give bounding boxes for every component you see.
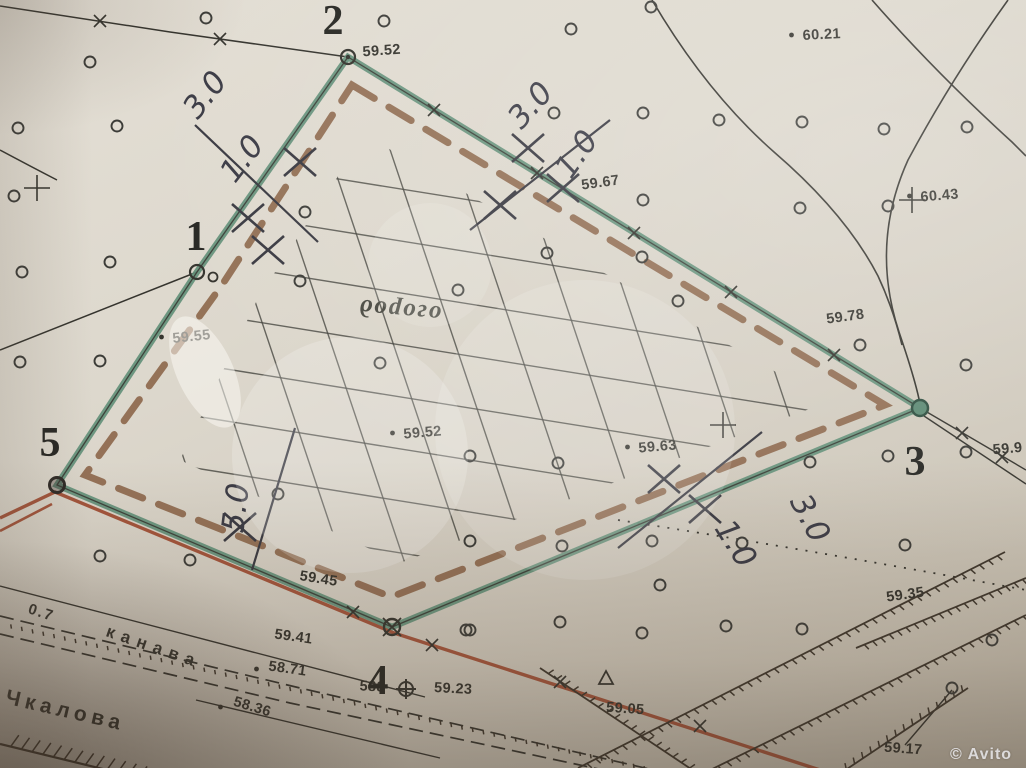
embankment-tooth [408,713,409,717]
embankment-tooth [32,740,40,751]
embankment-tooth [971,569,976,573]
embankment-tooth [656,742,661,746]
elevation-dot [789,33,794,38]
elevation-label: 59.05 [606,700,645,719]
embankment-tooth [623,745,628,749]
embankment-tooth [745,753,750,757]
embankment-tooth [960,647,965,651]
embankment-tooth [853,700,858,704]
embankment-tooth [631,725,636,729]
embankment-tooth [953,578,958,582]
embankment-tooth [920,713,921,719]
embankment-tooth [924,665,929,669]
embankment-tooth [587,763,592,767]
embankment-tooth [43,743,51,754]
elevation-label: 59.52 [362,42,401,61]
embankment-tooth [64,636,65,640]
embankment-tooth [673,753,678,757]
embankment-tooth [11,735,19,746]
site-plan-map: 59.5260.2160.4359.6759.5559.7859.5259.63… [0,0,1026,768]
point-symbol [805,457,816,468]
embankment-tooth [969,643,974,647]
embankment-tooth [601,757,602,761]
fence-line [0,6,348,57]
embankment-tooth [86,641,87,645]
point-symbol [962,122,973,133]
embankment-tooth [880,687,885,691]
embankment-tooth [997,556,1002,560]
embankment-tooth [225,672,226,676]
embankment-tooth [580,752,581,756]
embankment-tooth [537,742,538,746]
embankment-tooth [895,730,896,736]
embankment-tooth [783,664,788,668]
point-symbol [201,13,212,24]
contour-line [652,0,902,345]
corner-number: 2 [323,0,344,44]
point-symbol [987,635,998,646]
elevation-dot [254,667,259,672]
embankment-tooth [889,634,894,639]
embankment-tooth [774,669,779,673]
point-symbol [300,207,311,218]
corner-point-3 [912,400,928,416]
embankment-tooth [658,727,663,731]
embankment-tooth [763,744,768,748]
embankment-tooth [596,759,601,763]
embankment-tooth [301,689,302,693]
embankment-tooth [756,678,761,682]
embankment-tooth [871,691,876,695]
point-symbol [879,124,890,135]
embankment-tooth [598,703,603,707]
street-label: Чкалова [3,686,127,736]
embankment-tooth [903,724,904,730]
embankment-tooth [354,701,355,705]
embankment-tooth [939,614,944,619]
embankment-tooth [819,646,824,650]
embankment-tooth [988,560,993,564]
point-symbol [555,617,566,628]
embankment-tooth [690,764,695,768]
embankment-tooth [846,633,851,637]
embankment-tooth [558,747,559,751]
embankment-tooth [989,593,994,598]
point-symbol [15,357,26,368]
hatch-line [866,90,1026,620]
embankment-tooth [547,745,548,749]
elevation-label: 59.35 [885,584,925,605]
embankment-tooth [376,706,377,710]
embankment-tooth [632,741,637,745]
point-symbol [637,628,648,639]
embankment-tooth [906,674,911,678]
point-symbol [379,16,390,27]
embankment-tooth [32,629,33,633]
embankment-tooth [75,639,76,643]
embankment-tooth [685,714,690,718]
embankment-tooth [107,646,108,650]
point-symbol [112,121,123,132]
embankment-tooth [11,624,12,628]
embankment-tooth [973,600,978,605]
point-symbol [646,2,657,13]
embankment-tooth [128,764,136,768]
handwritten-measurement: 3.0 [501,75,561,136]
watermark-circle [435,280,735,580]
embankment-tooth [1014,621,1019,625]
embankment-tooth [694,709,699,713]
embankment-lines [0,552,1026,768]
point-symbol [105,257,116,268]
elevation-label: 60.43 [920,186,960,205]
embankment-tooth [1006,586,1011,591]
embankment-tooth [837,637,842,641]
embankment-tooth [956,607,961,612]
embankment-tooth [835,709,840,713]
embankment-tooth [739,687,744,691]
point-symbol [961,360,972,371]
embankment-tooth [21,738,29,749]
embankment-tooth [736,757,741,761]
embankment-tooth [862,752,863,758]
point-symbol [721,621,732,632]
elevation-dot [159,335,164,340]
embankment-line [0,744,255,768]
point-symbol [566,24,577,35]
embankment-tooth [810,651,815,655]
elevation-label: 59.41 [273,626,313,647]
embankment-tooth [75,751,83,762]
point-symbol [961,447,972,458]
embankment-tooth [935,587,940,591]
watermark-circle [232,337,468,573]
embankment-tooth [997,590,1002,595]
embankment-tooth [748,682,753,686]
embankment-tooth [915,669,920,673]
embankment-tooth [727,762,732,766]
embankment-tooth [721,696,726,700]
embankment-tooth [878,741,879,747]
contour-line [872,0,1026,156]
point-symbol [714,115,725,126]
embankment-tooth [365,704,366,708]
handwritten-measurement: 3.0 [176,64,235,125]
elevation-label: 59.9 [992,440,1023,459]
embankment-tooth [43,632,44,636]
embankment-tooth [981,597,986,602]
embankment-tooth [204,668,205,672]
embankment-tooth [279,684,280,688]
embankment-tooth [612,759,613,763]
embankment-tooth [681,759,686,763]
point-symbol [185,555,196,566]
fence-line [920,408,1026,470]
embankment-tooth [772,740,777,744]
embankment-tooth [258,680,259,684]
embankment-tooth [526,740,527,744]
embankment-tooth [236,675,237,679]
embankment-tooth [911,719,912,725]
point-symbol [655,580,666,591]
elevation-label: 59.23 [434,680,473,698]
handwritten-measurement: 1.0 [707,513,764,574]
contour-line [0,150,57,180]
point-symbol [638,108,649,119]
embankment-tooth [933,660,938,664]
embankment-tooth [311,692,312,696]
hatch-line [120,612,900,737]
embankment-tooth [268,682,269,686]
point-symbol [795,203,806,214]
embankment-tooth [54,634,55,638]
embankment-tooth [665,748,670,752]
point-symbol [797,624,808,635]
embankment-tooth [948,610,953,615]
embankment-tooth [799,727,804,731]
embankment-tooth [890,610,895,614]
embankment-tooth [926,592,931,596]
embankment-tooth [97,644,98,648]
embankment-tooth [862,696,867,700]
embankment-tooth [855,628,860,632]
scanned-site-plan-photo: 59.5260.2160.4359.6759.5559.7859.5259.63… [0,0,1026,768]
embankment-tooth [633,764,634,768]
point-symbol [797,117,808,128]
embankment-tooth [322,694,323,698]
embankment-tooth [844,705,849,709]
embankment-tooth [118,648,119,652]
embankment-tooth [53,746,61,757]
handwritten-measurement: 3.0 [782,488,837,548]
copyright-icon: © [950,746,963,763]
point-symbol [855,340,866,351]
embankment-tooth [107,759,115,768]
elevation-label: 59.78 [825,306,865,327]
embankment-tooth [897,678,902,682]
street-label: 0.7 [26,600,57,624]
embankment-tooth [765,673,770,677]
ditch-line [0,634,664,768]
embankment-tooth [64,748,72,759]
embankment-tooth [290,687,291,691]
embankment-tooth [870,746,871,752]
embankment-tooth [873,641,878,646]
elevation-label: 59.67 [580,172,620,193]
point-symbol [85,57,96,68]
watermark-brand: Avito [968,746,1012,763]
embankment-tooth [462,725,463,729]
point-symbol [9,191,20,202]
watermark-text: © Avito [950,746,1012,764]
embankment-tooth [872,619,877,623]
embankment-tooth [881,638,886,643]
embankment-tooth [569,749,570,753]
embankment-tooth [150,656,151,660]
corner-number: 5 [40,420,61,466]
embankment-tooth [247,677,248,681]
embankment-tooth [931,617,936,622]
embankment-tooth [781,735,786,739]
embankment-tooth [472,728,473,732]
elevation-label: 58.71 [267,658,307,679]
embankment-tooth [614,750,619,754]
embankment-tooth [712,700,717,704]
embankment-tooth [898,631,903,636]
embankment-tooth [676,718,681,722]
point-symbol [883,451,894,462]
embankment-tooth [942,656,947,660]
embankment-tooth [906,627,911,632]
point-symbol [900,540,911,551]
embankment-tooth [964,603,969,608]
embankment-tooth [951,652,956,656]
embankment-tooth [140,653,141,657]
embankment-tooth [828,642,833,646]
embankment-tooth [215,670,216,674]
embankment-tooth [928,707,929,713]
point-symbol [95,551,106,562]
embankment-tooth [1022,579,1026,584]
embankment-tooth [923,621,928,626]
embankment-tooth [980,565,985,569]
embankment-tooth [978,638,983,642]
embankment-tooth [623,761,624,765]
embankment-tooth [649,732,654,736]
watermark-circle [368,203,492,327]
embankment-tooth [808,722,813,726]
embankment-tooth [914,624,919,629]
point-symbol [947,683,958,694]
embankment-tooth [515,737,516,741]
embankment-tooth [961,685,962,691]
point-symbol [638,195,649,206]
embankment-tooth [96,756,104,767]
embankment-tooth [1005,625,1010,629]
embankment-tooth [944,583,949,587]
corner-number: 1 [186,214,207,260]
embankment-tooth [864,645,869,650]
embankment-tooth [623,720,628,724]
embankment-tooth [440,721,441,725]
point-symbol [465,536,476,547]
embankment-tooth [853,758,854,764]
embankment-tooth [573,687,578,691]
street-label: канава [104,622,204,672]
embankment-tooth [817,718,822,722]
embankment-tooth [864,624,869,628]
embankment-tooth [1014,583,1019,588]
embankment-tooth [648,737,653,741]
embankment-tooth [118,761,126,768]
embankment-tooth [397,711,398,715]
point-symbol [13,123,24,134]
point-symbol [637,252,648,263]
embankment-tooth [730,691,735,695]
embankment-tooth [505,735,506,739]
triangle-point-icon [599,671,613,684]
point-symbol [673,296,684,307]
embankment-tooth [483,730,484,734]
embankment-tooth [21,627,22,631]
embankment-tooth [86,753,94,764]
embankment-tooth [129,651,130,655]
elevation-dot [907,194,912,199]
embankment-tooth [590,754,591,758]
embankment-tooth [899,606,904,610]
corner-point-5 [50,478,65,493]
embankment-tooth [703,705,708,709]
embankment-tooth [419,716,420,720]
embankment-tooth [826,713,831,717]
embankment-tooth [494,733,495,737]
embankment-tooth [996,630,1001,634]
embankment-tooth [792,660,797,664]
embankment-tooth [333,696,334,700]
embankment-tooth [343,699,344,703]
boundary-tie-line [0,272,197,350]
embankment-tooth [801,655,806,659]
road-edge-red [0,504,52,531]
elevation-label: 60.21 [802,26,841,44]
embankment-tooth [845,763,846,768]
corner-number: 3 [905,439,926,485]
point-symbol [95,356,106,367]
elevation-label: 59.17 [884,740,923,759]
embankment-tooth [962,574,967,578]
embankment-tooth [790,731,795,735]
embankment-tooth [429,718,430,722]
embankment-tooth [881,615,886,619]
corner-number: 4 [368,658,389,704]
embankment-tooth [451,723,452,727]
elevation-dot [218,705,223,710]
embankment-tooth [565,681,570,685]
embankment-tooth [386,708,387,712]
point-symbol [17,267,28,278]
embankment-tooth [548,670,553,674]
embankment-tooth [889,682,894,686]
